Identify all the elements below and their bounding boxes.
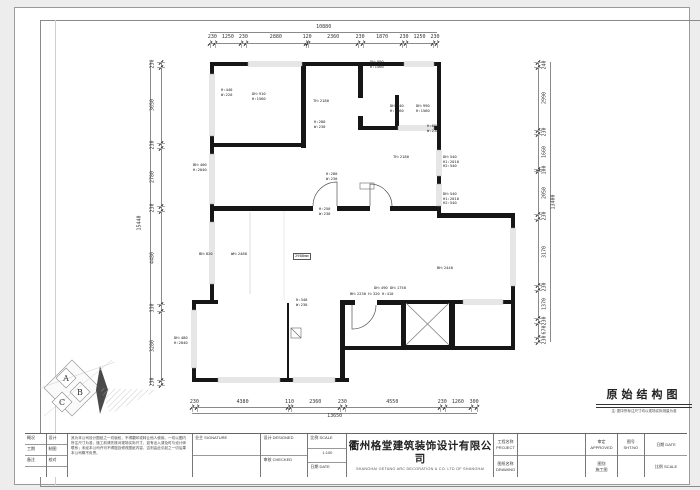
tb-col-owner: 业主 SIGNATURE (193, 434, 261, 477)
dim-value: 4550 (386, 400, 398, 405)
dim-ext-line (534, 337, 542, 338)
floor-plan-drawing: A B C (0, 0, 700, 490)
tb-cell: 设计 (47, 434, 68, 445)
dim-value: 120 (303, 35, 312, 40)
dim-total-left: 15440 (138, 216, 143, 231)
dim-ext-line (215, 40, 216, 48)
tb-date-label: 日期 DATE (308, 463, 346, 477)
tb-date2-label: 日期 DATE (647, 442, 685, 447)
plan-annotation: DH:940H:1560 (390, 104, 404, 113)
plan-annotation: 2900mm (293, 253, 311, 260)
dim-value: 3170 (543, 246, 548, 258)
dim-ext-line (440, 404, 441, 412)
dim-value: 1370 (543, 298, 548, 310)
dim-value: 2360 (309, 400, 321, 405)
dim-value: 2360 (327, 35, 339, 40)
tb-scale-value: 1:100 (308, 449, 346, 464)
dim-total-line-top (210, 32, 437, 33)
logo-letter-c: C (59, 398, 65, 407)
tb-check-label: 审核 CHECKED (261, 456, 307, 477)
plan-annotation: DH:990H:1560 (416, 104, 430, 113)
dim-ext-line (157, 380, 165, 381)
dim-ext-line (534, 342, 542, 343)
dim-ext-line (157, 143, 165, 144)
tb-sheet-en: SHT.NO (620, 445, 642, 450)
tb-project-label: 工程名称 PROJECT (494, 434, 517, 456)
dim-ext-line (157, 62, 165, 63)
dim-value: 1870 (376, 35, 388, 40)
tb-project-value (518, 434, 585, 456)
plan-annotation: DH:990H:1560 (370, 60, 384, 69)
dim-value: 330 (151, 303, 156, 312)
drawing-title-note: 注: 图中所标注尺寸均以现场实际测量为准 (596, 409, 692, 414)
tb-scale2: 比例 SCALE (645, 456, 687, 477)
dim-ext-line (345, 404, 346, 412)
tb-scale2-label: 比例 SCALE (647, 464, 685, 469)
tb-col-design: 设计 DESIGNED 审核 CHECKED (261, 434, 308, 477)
plan-overlay: A B C 1088023012502302880120236023018702… (0, 0, 700, 490)
title-block: 概况 工期 备注 设计 制图 校对 其为本公司设计图纸之一切版权，不得翻印或转让… (25, 433, 687, 477)
dim-ext-line (534, 285, 542, 286)
plan-annotation: DH:480H:2040 (174, 336, 188, 345)
tb-col-project: 工程名称 PROJECT 图纸名称 DRAWING (494, 434, 518, 477)
dim-value: 1250 (222, 35, 234, 40)
dim-ext-line (534, 62, 542, 63)
tb-col-labels-2: 设计 制图 校对 (47, 434, 69, 477)
tb-col-company: 衢州格堂建筑装饰设计有限公司 SHANGHAI GETANG ARC DECOR… (347, 434, 494, 477)
dim-line-left (161, 62, 162, 385)
tb-col-sheetno: 图号 SHT.NO (618, 434, 645, 477)
dim-ext-line (534, 219, 542, 220)
tb-approved: 审定 APPROVED (586, 434, 616, 456)
dim-ext-line (210, 40, 211, 48)
dim-ext-line (471, 404, 472, 412)
dim-ext-line (433, 40, 434, 48)
dim-value: 4380 (237, 400, 249, 405)
elevator-shaft (405, 302, 450, 346)
dim-value: 100 (543, 166, 548, 175)
plan-annotation: BH:2230 H:320 H:410 (350, 292, 393, 297)
dim-value: 3650 (151, 99, 156, 111)
tb-cell (47, 467, 68, 477)
dim-ext-line (534, 290, 542, 291)
tb-sheet-value (618, 456, 644, 477)
dim-ext-line (437, 40, 438, 48)
plan-annotation: H:280W:230 (326, 172, 337, 181)
plan-annotation: TH:2180 (313, 99, 329, 104)
plan-annotation: BH:400H:2040 (193, 163, 207, 172)
dim-ext-line (340, 404, 341, 412)
dim-value: 670 (543, 326, 548, 335)
logo-letter-b: B (77, 388, 83, 397)
tb-col-scale: 比例 SCALE 1:100 日期 DATE (308, 434, 347, 477)
dim-ext-line (534, 67, 542, 68)
dim-value: 1660 (543, 146, 548, 158)
dim-line-bottom (192, 407, 477, 408)
tb-sheet: 图号 SHT.NO (618, 434, 644, 456)
dim-value: 2050 (543, 186, 548, 198)
plan-annotation: H:440W:220 (221, 88, 232, 97)
dim-total-bottom: 13650 (327, 414, 342, 419)
dim-value: 4480 (151, 252, 156, 264)
dim-ext-line (534, 323, 542, 324)
dim-value: 230 (151, 204, 156, 213)
tb-drawing-value (518, 456, 585, 477)
plan-annotation: BH:820 (199, 252, 213, 257)
tb-type-value: 施工图 (588, 467, 614, 472)
company-logo: A B C (40, 360, 158, 416)
dim-ext-line (445, 404, 446, 412)
dim-value: 1260 (452, 400, 464, 405)
tb-cell: 工期 (25, 445, 46, 456)
dim-ext-line (157, 211, 165, 212)
tb-owner-label: 业主 SIGNATURE (193, 434, 260, 456)
dim-ext-line (402, 40, 403, 48)
cad-viewer-page: { "drawing_title": { "text": "原始结构图", "n… (0, 0, 700, 490)
tb-cell (25, 467, 46, 477)
logo-letter-a: A (62, 374, 69, 383)
plan-annotation: H:340W:230 (296, 298, 307, 307)
tb-notes: 其为本公司设计图纸之一切版权，不得翻印或转让他人使用。一切以图内所注尺寸为准，施… (68, 434, 192, 457)
drawing-title-block: 原始结构图 注: 图中所标注尺寸均以现场实际测量为准 (596, 386, 692, 414)
dim-ext-line (406, 40, 407, 48)
drawing-title: 原始结构图 (596, 386, 692, 402)
tb-cell: 概况 (25, 434, 46, 445)
title-underline (596, 404, 692, 408)
tb-type: 图别 施工图 (586, 456, 616, 477)
dim-line-right (538, 62, 539, 342)
company-name-en: SHANGHAI GETANG ARC DECORATION & CO. LTD… (347, 467, 493, 471)
plan-annotation: H:680W:230 (427, 124, 438, 133)
dim-ext-line (534, 130, 542, 131)
tb-owner-value (193, 456, 260, 477)
dim-ext-line (363, 40, 364, 48)
plan-annotation: H:280W:230 (314, 120, 325, 129)
plan-annotation: DH:540H1:2010H2:540 (443, 155, 459, 169)
plan-annotation: TH:2180 (393, 155, 409, 160)
plan-annotation: BH:2440 (437, 266, 453, 271)
dim-ext-line (157, 206, 165, 207)
tb-cell: 校对 (47, 456, 68, 467)
dim-total-right: 13400 (552, 194, 557, 209)
dim-ext-line (157, 148, 165, 149)
dim-ext-line (157, 385, 165, 386)
dim-total-top: 10880 (316, 25, 331, 30)
dim-ext-line (291, 404, 292, 412)
tb-col-project-value (518, 434, 586, 477)
dim-value: 2990 (543, 92, 548, 104)
door-arcs (313, 182, 392, 329)
dim-value: 230 (543, 127, 548, 136)
dim-value: 3280 (151, 340, 156, 352)
dim-value: 230 (543, 316, 548, 325)
dim-ext-line (534, 171, 542, 172)
windows-group (192, 62, 515, 382)
dim-value: 230 (543, 283, 548, 292)
dim-ext-line (534, 214, 542, 215)
plan-annotation: DH:540H1:2010H2:540 (443, 192, 459, 206)
dim-ext-line (192, 404, 193, 412)
dim-ext-line (246, 40, 247, 48)
dim-value: 240 (543, 60, 548, 69)
tb-col-approved: 审定 APPROVED 图别 施工图 (586, 434, 617, 477)
plan-annotation: H:250W:230 (319, 207, 330, 216)
dim-value: 2780 (151, 171, 156, 183)
dim-ext-line (358, 40, 359, 48)
plan-annotation: WH:2480 (231, 252, 247, 257)
tb-col-date: 日期 DATE 比例 SCALE (645, 434, 687, 477)
tb-approved-en: APPROVED (588, 445, 614, 450)
tb-drawing-label: 图纸名称 DRAWING (494, 456, 517, 477)
dim-value: 230 (543, 335, 548, 344)
dim-ext-line (157, 311, 165, 312)
dim-ext-line (157, 67, 165, 68)
tb-cell: 制图 (47, 445, 68, 456)
dim-ext-line (157, 304, 165, 305)
dim-ext-line (197, 404, 198, 412)
plan-annotation: DH:490 DH:1750 (374, 286, 406, 291)
tb-design-label: 设计 DESIGNED (261, 434, 307, 456)
dim-ext-line (241, 40, 242, 48)
tb-date2: 日期 DATE (645, 434, 687, 456)
walls-group (192, 62, 515, 382)
dim-value: 230 (543, 212, 548, 221)
company-name-cn: 衢州格堂建筑装饰设计有限公司 (347, 440, 493, 465)
tb-drawing-en: DRAWING (496, 467, 515, 472)
tb-col-labels-1: 概况 工期 备注 (25, 434, 47, 477)
dim-value: 1250 (413, 35, 425, 40)
dim-value: 2880 (270, 35, 282, 40)
dim-value: 230 (151, 60, 156, 69)
dim-value: 230 (151, 141, 156, 150)
dim-value: 230 (151, 378, 156, 387)
plan-annotation: DH:910H:1560 (252, 92, 266, 101)
tb-cell: 备注 (25, 456, 46, 467)
dim-ext-line (308, 40, 309, 48)
dim-ext-line (534, 134, 542, 135)
tb-scale-label: 比例 SCALE (308, 434, 346, 449)
dim-ext-line (477, 404, 478, 412)
tb-project-en: PROJECT (496, 445, 515, 450)
tb-col-notes: 其为本公司设计图纸之一切版权，不得翻印或转让他人使用。一切以图内所注尺寸为准，施… (68, 434, 193, 477)
dim-ext-line (534, 318, 542, 319)
